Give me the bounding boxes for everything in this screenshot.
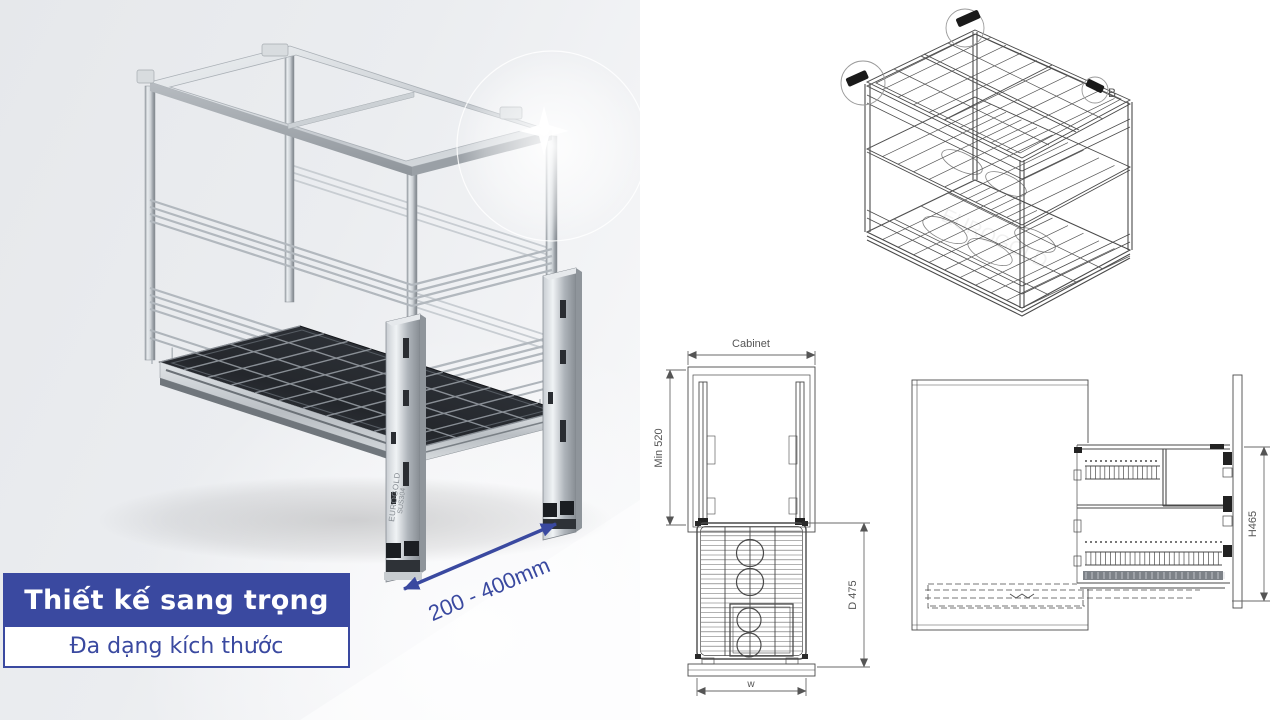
technical-drawings-panel: B EUROGOLD — [640, 0, 1280, 720]
iso-wire-grids — [867, 30, 1130, 308]
frame-crossbar — [288, 92, 414, 129]
height-label: H465 — [1247, 511, 1259, 537]
caption-subtitle: Đa dạng kích thước — [3, 627, 350, 668]
iso-view: B EUROGOLD — [841, 9, 1132, 316]
side-view: H465 — [912, 375, 1270, 630]
mounting-bracket-left: EUROGOLD SUS304 — [384, 314, 426, 582]
caption-title: Thiết kế sang trọng — [3, 573, 350, 627]
technical-drawings: B EUROGOLD — [640, 0, 1280, 720]
front-view: Cabinet Min 520 D 475 w — [653, 338, 870, 696]
mounting-tabs — [137, 44, 522, 119]
min-height-label: Min 520 — [653, 428, 665, 467]
mounting-bracket-right — [543, 268, 582, 540]
clamp-marks — [845, 9, 1105, 93]
product-photo-panel: EUROGOLD SUS304 — [0, 0, 640, 720]
basket-plan — [695, 521, 808, 659]
slide-rails-front — [698, 382, 805, 525]
product-sheet: EUROGOLD SUS304 — [0, 0, 1280, 720]
depth-label: D 475 — [847, 580, 859, 609]
floor-shadow — [97, 476, 613, 564]
cabinet-width-label: Cabinet — [732, 338, 770, 350]
caption-box: Thiết kế sang trọng Đa dạng kích thước — [3, 573, 350, 668]
width-label: w — [746, 679, 755, 690]
detail-b-label: B — [1108, 86, 1116, 100]
door-panel — [1233, 375, 1242, 608]
basket-side — [1074, 443, 1232, 589]
sparkle-highlight — [457, 51, 640, 241]
